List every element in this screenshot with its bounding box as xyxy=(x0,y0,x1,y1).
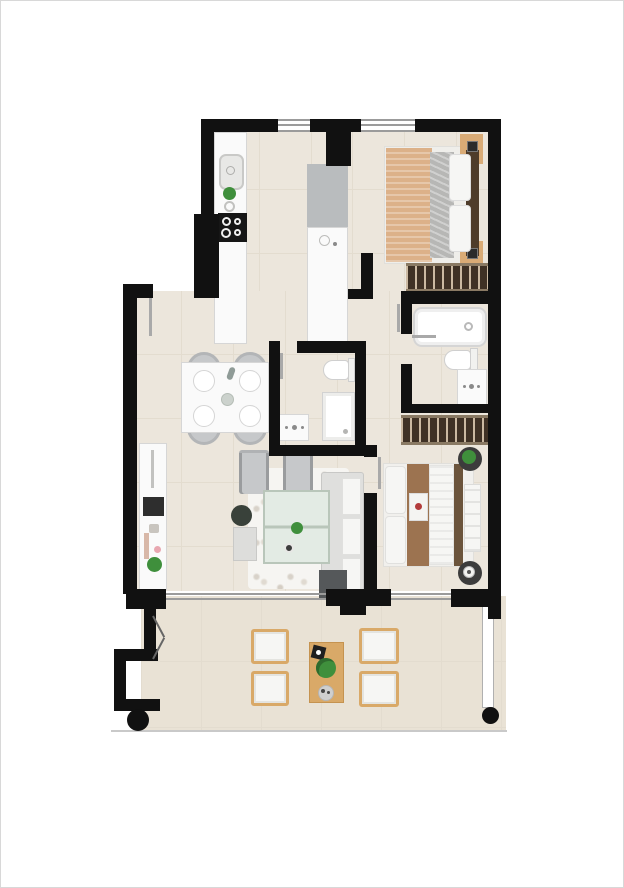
terrace-tray-cup-a xyxy=(321,689,325,693)
sideboard-book xyxy=(144,533,149,559)
top-wall-mid xyxy=(310,119,361,132)
island-sink xyxy=(319,235,330,246)
terrace-chair-4 xyxy=(359,671,399,707)
shower-tray xyxy=(322,392,355,441)
terrace-tray-cup-b xyxy=(327,691,330,694)
bedroom2-door-leaf xyxy=(378,457,381,489)
living-bedroom2-divider-b xyxy=(364,493,377,591)
dining-plate-1 xyxy=(193,370,215,392)
sofa-cushion-2 xyxy=(342,518,361,555)
terrace-edge-line xyxy=(111,730,507,732)
bedroom1-window xyxy=(361,119,415,132)
sideboard-deco xyxy=(149,524,159,533)
island-faucet-dot xyxy=(333,242,337,246)
bathroom1-toilet xyxy=(444,350,471,370)
bathroom1-left-wall-b xyxy=(401,364,412,405)
armchair-1 xyxy=(239,450,269,494)
kitchen-window xyxy=(278,119,310,132)
bedroom1-door-leaf xyxy=(397,304,400,332)
bathroom2-vanity-faucet xyxy=(292,425,297,430)
terrace-column-right xyxy=(482,707,499,724)
terrace-chair-2 xyxy=(251,671,289,706)
kitchen-plant xyxy=(223,187,236,200)
bathroom1-vanity-faucet xyxy=(469,384,474,389)
kitchen-left-wall xyxy=(201,119,214,216)
terrace-column-left xyxy=(127,709,149,731)
wc-bottom-wall xyxy=(269,445,366,456)
side-table xyxy=(233,527,257,561)
bathroom2-door-leaf xyxy=(280,353,283,379)
wc-left-wall xyxy=(269,341,280,456)
bedroom1-bottom-wall xyxy=(401,291,488,304)
bathroom1-door-leaf xyxy=(412,335,436,338)
dining-plate-2 xyxy=(239,370,261,392)
living-terrace-slider xyxy=(166,593,326,600)
terrace-corner-left xyxy=(126,589,166,609)
kitchen-tall-units xyxy=(307,164,348,227)
bed2-pillow-bottom xyxy=(385,516,406,564)
left-wall xyxy=(123,284,137,594)
bed2-duvet xyxy=(429,465,454,565)
right-wall xyxy=(488,119,501,589)
bathroom2-toilet-tank xyxy=(348,358,355,382)
terrace-plant xyxy=(316,658,336,678)
kitchen-faucet xyxy=(224,201,235,212)
bed1-pillow-bottom xyxy=(449,205,471,252)
terrace-tray-dot xyxy=(316,650,321,655)
sideboard-plant xyxy=(147,557,162,572)
cooktop-burner-1 xyxy=(222,217,231,226)
bathroom1-vanity-knob-a xyxy=(463,385,466,388)
bathroom2-vanity-knob-b xyxy=(301,426,304,429)
coffee-table-plant xyxy=(291,522,303,534)
bathroom1-bottom-wall xyxy=(401,404,488,413)
kitchen-bedroom1-divider-top xyxy=(326,132,351,166)
bed1-pillow-top xyxy=(449,154,471,201)
bathroom2-vanity-knob-a xyxy=(285,426,288,429)
shower-drain xyxy=(343,429,348,434)
terrace-pillar-notch xyxy=(340,606,366,615)
cooktop-burner-2 xyxy=(234,218,241,225)
dining-plate-3 xyxy=(193,405,215,427)
kitchen-sink-drain xyxy=(226,166,235,175)
bed2-lamp-dot xyxy=(467,570,471,574)
tv xyxy=(143,497,164,516)
hall-wall-h xyxy=(348,289,373,299)
bedroom1-wardrobe xyxy=(406,263,488,292)
bedroom2-terrace-slider xyxy=(391,593,451,600)
sideboard-handle xyxy=(151,450,154,488)
terrace-balustrade xyxy=(482,606,494,708)
armchair-2 xyxy=(283,450,313,494)
dark-plant xyxy=(231,505,252,526)
terrace-chair-3 xyxy=(359,628,399,664)
wc-right-wall xyxy=(355,341,366,456)
terrace-corner-right-v xyxy=(488,586,501,619)
bed1-duvet xyxy=(386,148,432,262)
bathroom2-toilet xyxy=(323,360,349,380)
sofa-cushion-1 xyxy=(342,478,361,515)
entrance-door-leaf xyxy=(149,298,152,336)
terrace-tray-round xyxy=(318,685,334,701)
terrace-chair-1 xyxy=(251,629,289,664)
bed2-flower xyxy=(415,503,422,510)
cooktop-burner-3 xyxy=(221,228,231,238)
bedroom2-wardrobe xyxy=(401,415,488,445)
niche-wall-v xyxy=(144,607,156,653)
sideboard-flowers xyxy=(154,546,161,553)
bed2-bench xyxy=(464,484,481,552)
dining-plate-4 xyxy=(239,405,261,427)
bathtub xyxy=(413,307,487,347)
bed2-pillow-top xyxy=(385,466,406,514)
kitchen-step-wall xyxy=(194,214,219,298)
cooktop-burner-4 xyxy=(234,229,241,236)
bed2-nightstand-plant xyxy=(462,450,476,464)
coffee-table-bowl xyxy=(284,543,294,553)
bathroom1-left-wall-a xyxy=(401,304,412,334)
living-bedroom2-divider-a xyxy=(364,445,377,457)
bed2-headboard xyxy=(454,464,463,566)
bed1-lamp-top xyxy=(467,141,478,152)
bathroom1-vanity-knob-b xyxy=(477,385,480,388)
floor-plan-canvas xyxy=(0,0,624,888)
dining-centerpiece xyxy=(221,393,234,406)
bathtub-drain xyxy=(464,322,473,331)
terrace-pillar xyxy=(326,589,391,606)
